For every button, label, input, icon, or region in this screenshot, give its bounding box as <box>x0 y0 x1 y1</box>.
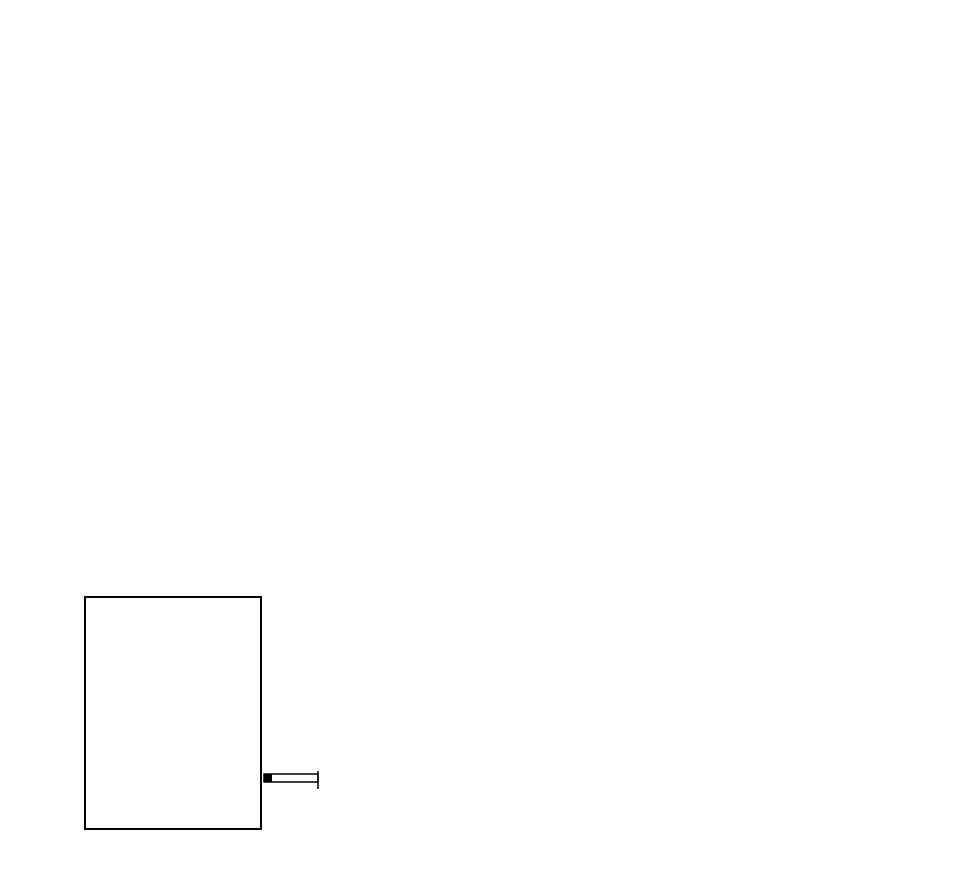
scale-bar-black-segment <box>264 774 272 782</box>
legend-box <box>85 597 261 829</box>
scale-bar-body <box>264 774 318 782</box>
scale-bar <box>264 771 318 789</box>
seismicity-map-canvas <box>0 0 978 871</box>
magnitude-legend <box>85 597 261 829</box>
